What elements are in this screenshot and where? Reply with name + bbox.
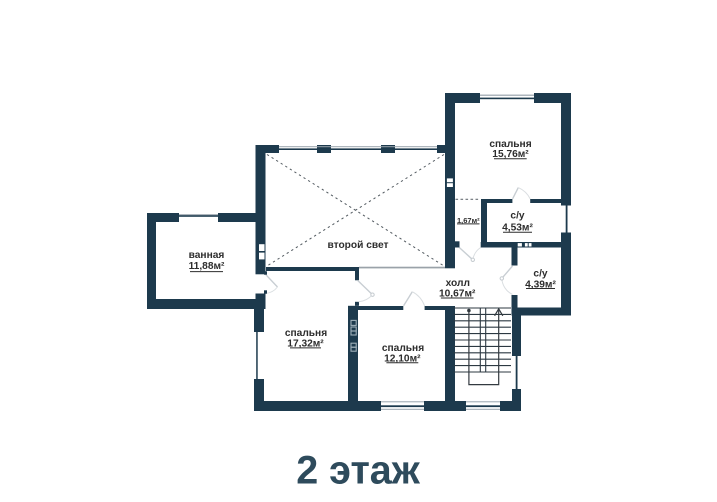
svg-text:спальня: спальня [489,139,531,150]
svg-text:11,88м²: 11,88м² [189,261,225,272]
svg-text:спальня: спальня [382,343,424,354]
svg-text:с/у: с/у [533,269,547,280]
svg-text:ванная: ванная [189,250,225,261]
svg-text:с/у: с/у [510,210,524,221]
svg-text:2 этаж: 2 этаж [296,449,421,493]
svg-text:холл: холл [446,278,470,289]
svg-text:второй свет: второй свет [327,240,388,251]
